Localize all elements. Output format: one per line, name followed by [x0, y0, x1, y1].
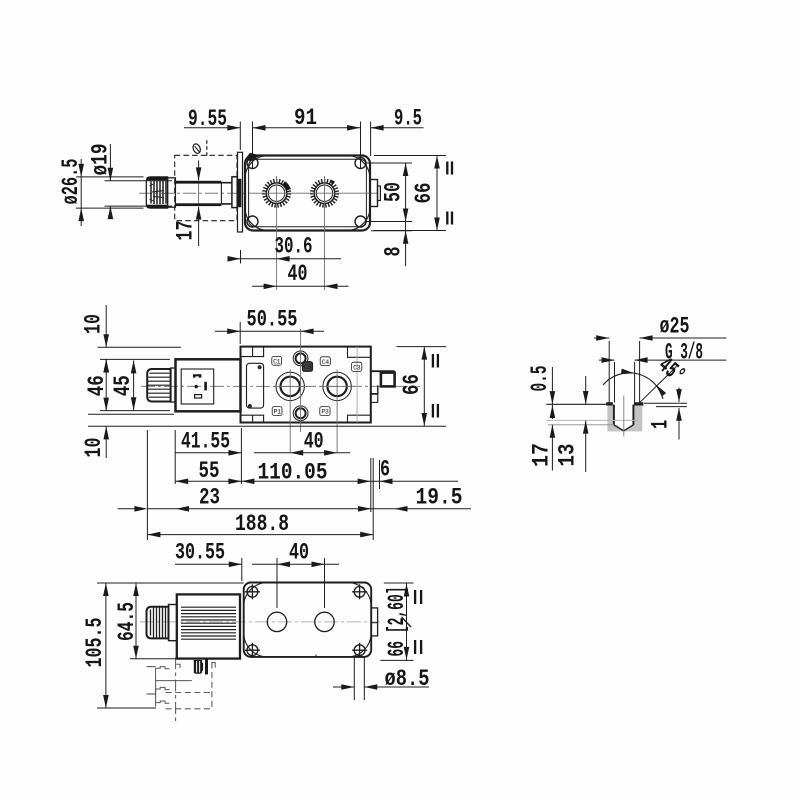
svg-text:64.5: 64.5 [114, 602, 141, 641]
svg-text:9.5: 9.5 [394, 106, 422, 133]
svg-text:40: 40 [304, 429, 324, 456]
svg-text:66: 66 [399, 374, 426, 395]
svg-text:105.5: 105.5 [82, 618, 109, 668]
svg-text:C3: C3 [353, 364, 361, 371]
svg-text:23: 23 [199, 485, 220, 512]
svg-text:0.5: 0.5 [527, 366, 554, 392]
svg-text:C5: C5 [304, 364, 312, 371]
svg-text:9.55: 9.55 [188, 106, 227, 133]
svg-text:55: 55 [199, 458, 220, 485]
svg-text:ø19: ø19 [88, 144, 115, 176]
svg-text:10: 10 [81, 314, 108, 334]
svg-text:C4: C4 [322, 359, 330, 366]
svg-text:17: 17 [173, 221, 200, 241]
svg-text:30.6: 30.6 [275, 234, 313, 261]
svg-text:10: 10 [81, 438, 108, 458]
svg-text:40: 40 [288, 261, 308, 288]
svg-text:13: 13 [555, 444, 582, 467]
svg-text:188.8: 188.8 [235, 511, 289, 538]
svg-text:50.55: 50.55 [247, 307, 298, 334]
svg-text:8: 8 [381, 247, 408, 257]
svg-text:50: 50 [380, 182, 407, 202]
svg-text:17: 17 [529, 443, 556, 467]
svg-text:40: 40 [289, 540, 309, 567]
svg-text:91: 91 [294, 105, 317, 132]
svg-text:110.05: 110.05 [258, 460, 328, 487]
svg-text:45: 45 [110, 375, 137, 396]
svg-text:30.55: 30.55 [175, 540, 225, 567]
svg-text:66 [2,60]: 66 [2,60] [384, 587, 411, 657]
svg-text:1: 1 [648, 420, 675, 429]
svg-text:46: 46 [84, 375, 111, 396]
svg-text:P3: P3 [321, 409, 329, 416]
svg-text:6: 6 [380, 457, 390, 484]
svg-text:ø8.5: ø8.5 [385, 666, 430, 693]
svg-text:C1: C1 [273, 358, 281, 365]
svg-text:19.5: 19.5 [416, 485, 463, 512]
svg-text:41.55: 41.55 [181, 429, 230, 456]
svg-text:ø26.5: ø26.5 [58, 159, 85, 205]
svg-text:P1: P1 [274, 409, 282, 416]
svg-text:ø25: ø25 [660, 314, 690, 341]
svg-text:66: 66 [411, 183, 438, 204]
